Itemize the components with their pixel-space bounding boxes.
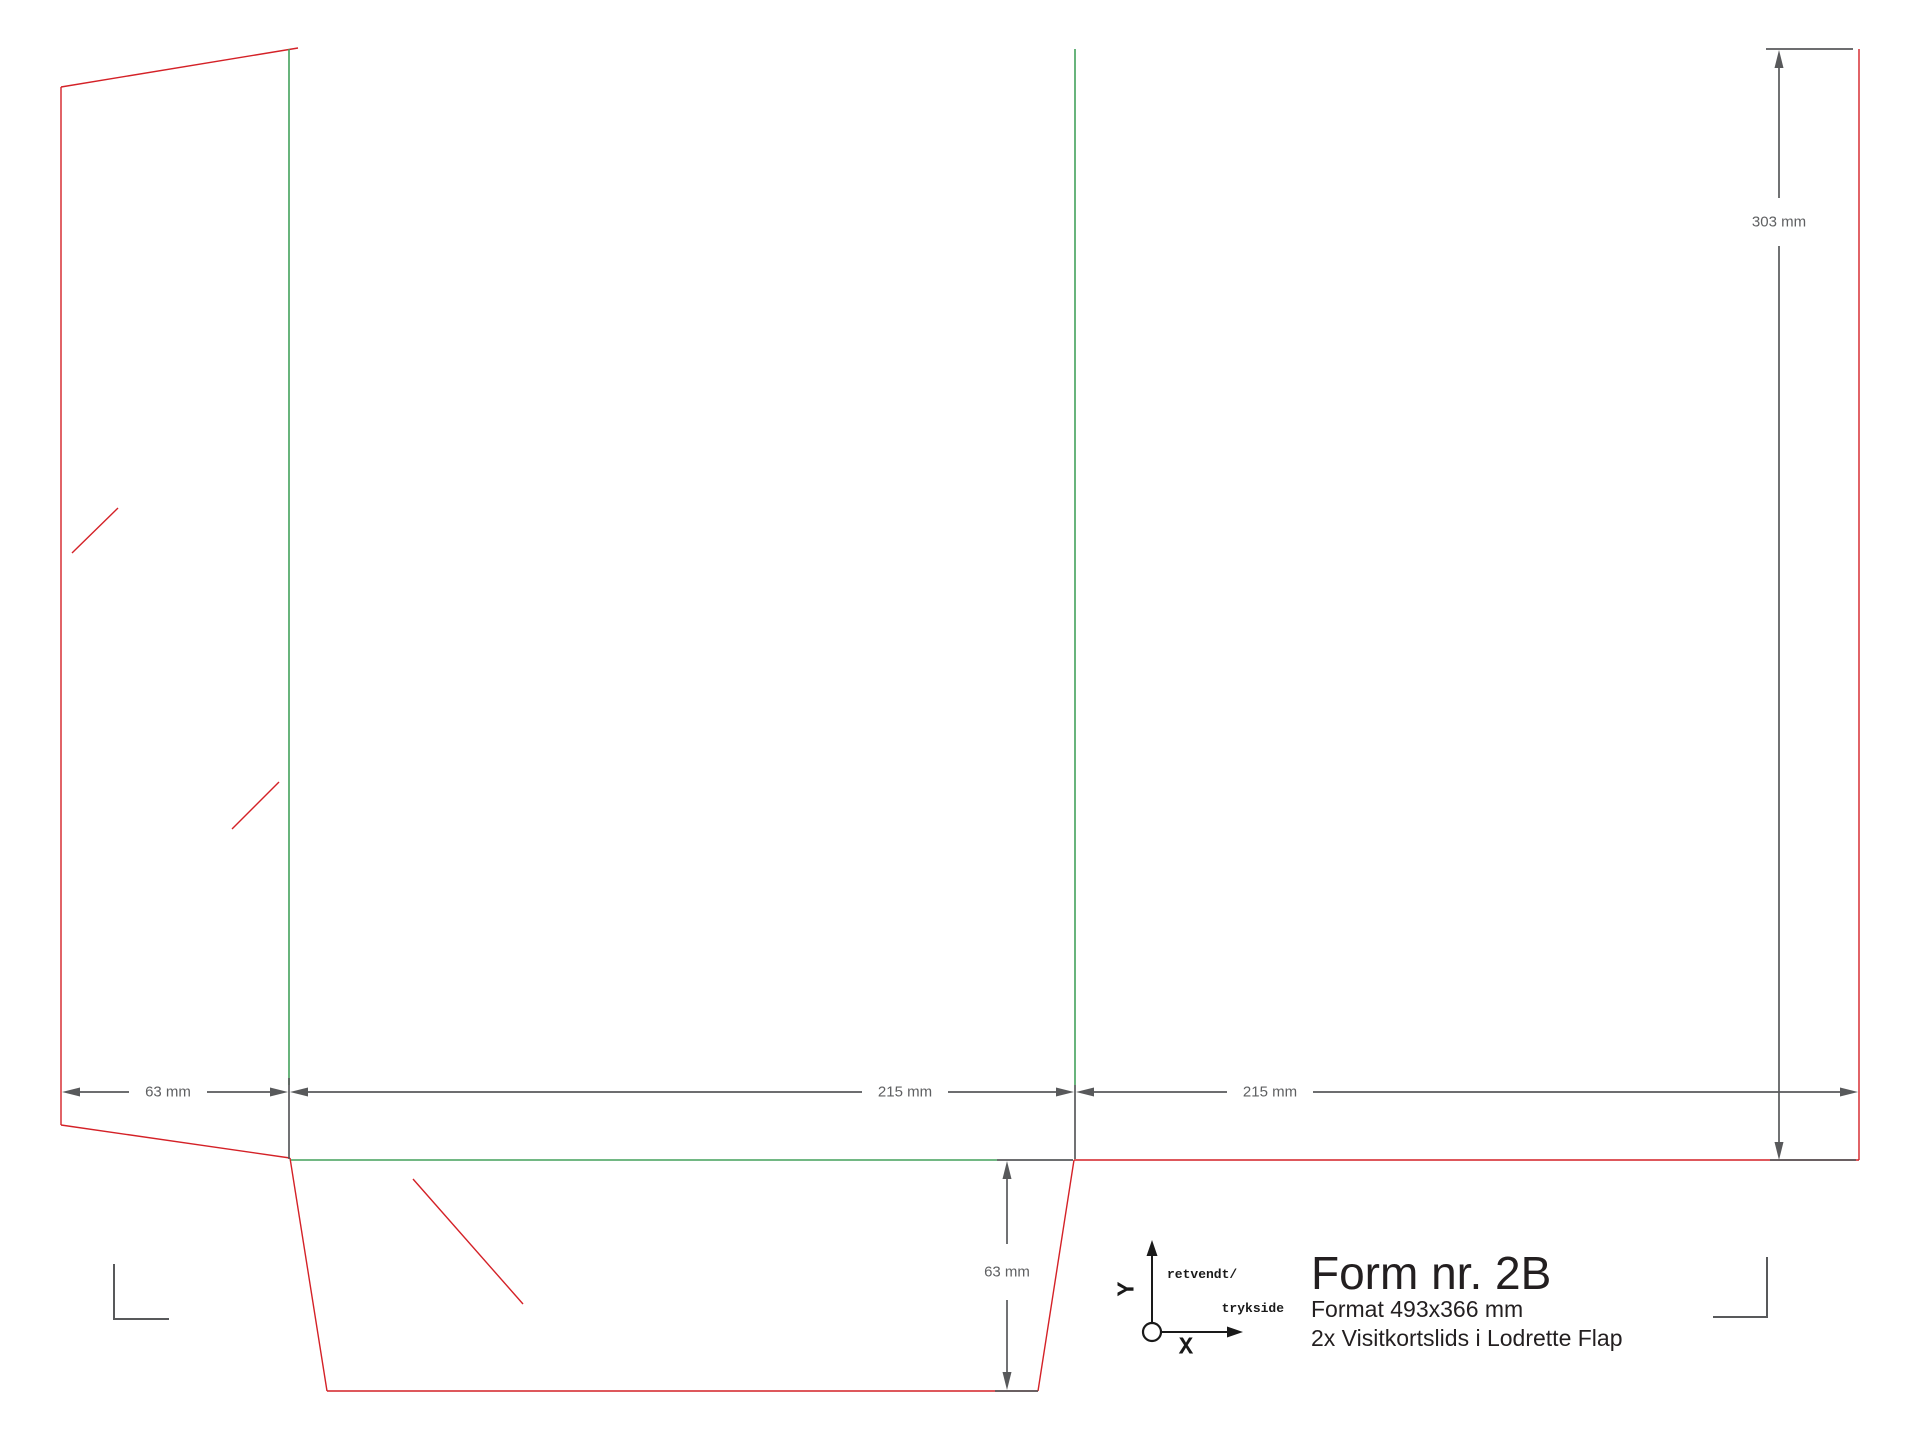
- orientation-note: retvendt/ trykside: [1167, 1266, 1284, 1317]
- business-card-slit-2: [232, 782, 279, 829]
- orientation-note-line2: trykside: [1222, 1301, 1284, 1316]
- arrow-down-303: [1775, 1142, 1784, 1160]
- dimension-lines: [80, 49, 1856, 1391]
- fold-lines: [289, 49, 1075, 1160]
- left-flap-bottom-edge: [61, 1125, 290, 1158]
- arrow-down-63v: [1003, 1372, 1012, 1390]
- form-description: 2x Visitkortslids i Lodrette Flap: [1311, 1327, 1623, 1350]
- axis-y-arrowhead: [1147, 1240, 1158, 1256]
- cut-lines: [61, 48, 1859, 1391]
- form-format: Format 493x366 mm: [1311, 1298, 1523, 1321]
- bottom-flap-right-edge: [1038, 1160, 1074, 1391]
- arrow-up-63v: [1003, 1161, 1012, 1179]
- left-flap-top-edge: [61, 48, 298, 87]
- corner-mark-bottom-right: [1713, 1257, 1767, 1317]
- orientation-note-line1: retvendt/: [1167, 1267, 1237, 1282]
- arrow-left-215a: [290, 1088, 308, 1097]
- corner-mark-bottom-left: [114, 1264, 169, 1319]
- arrow-left-63: [62, 1088, 80, 1097]
- bottom-flap-slit: [413, 1179, 523, 1304]
- dim-label-left-flap-width: 63 mm: [141, 1084, 195, 1101]
- arrow-right-215b: [1840, 1088, 1858, 1097]
- bottom-flap-left-edge: [290, 1158, 327, 1391]
- dim-label-panel1-width: 215 mm: [874, 1084, 936, 1101]
- axis-x-arrowhead: [1227, 1327, 1243, 1338]
- business-card-slit-1: [72, 508, 118, 553]
- dim-label-panel2-width: 215 mm: [1239, 1084, 1301, 1101]
- dim-label-bottom-flap-height: 63 mm: [980, 1264, 1034, 1281]
- arrow-up-303: [1775, 50, 1784, 68]
- dim-label-panel-height: 303 mm: [1748, 214, 1810, 231]
- template-geometry: [0, 0, 1920, 1440]
- dimension-arrowheads: [62, 50, 1858, 1390]
- die-template-drawing: 63 mm 215 mm 215 mm 303 mm 63 mm Y X ret…: [0, 0, 1920, 1440]
- axis-origin-circle: [1143, 1323, 1161, 1341]
- form-title: Form nr. 2B: [1311, 1250, 1551, 1296]
- arrow-right-215a: [1056, 1088, 1074, 1097]
- axis-x-label: X: [1179, 1335, 1193, 1362]
- arrow-right-63: [270, 1088, 288, 1097]
- arrow-left-215b: [1076, 1088, 1094, 1097]
- axis-y-label: Y: [1115, 1282, 1142, 1296]
